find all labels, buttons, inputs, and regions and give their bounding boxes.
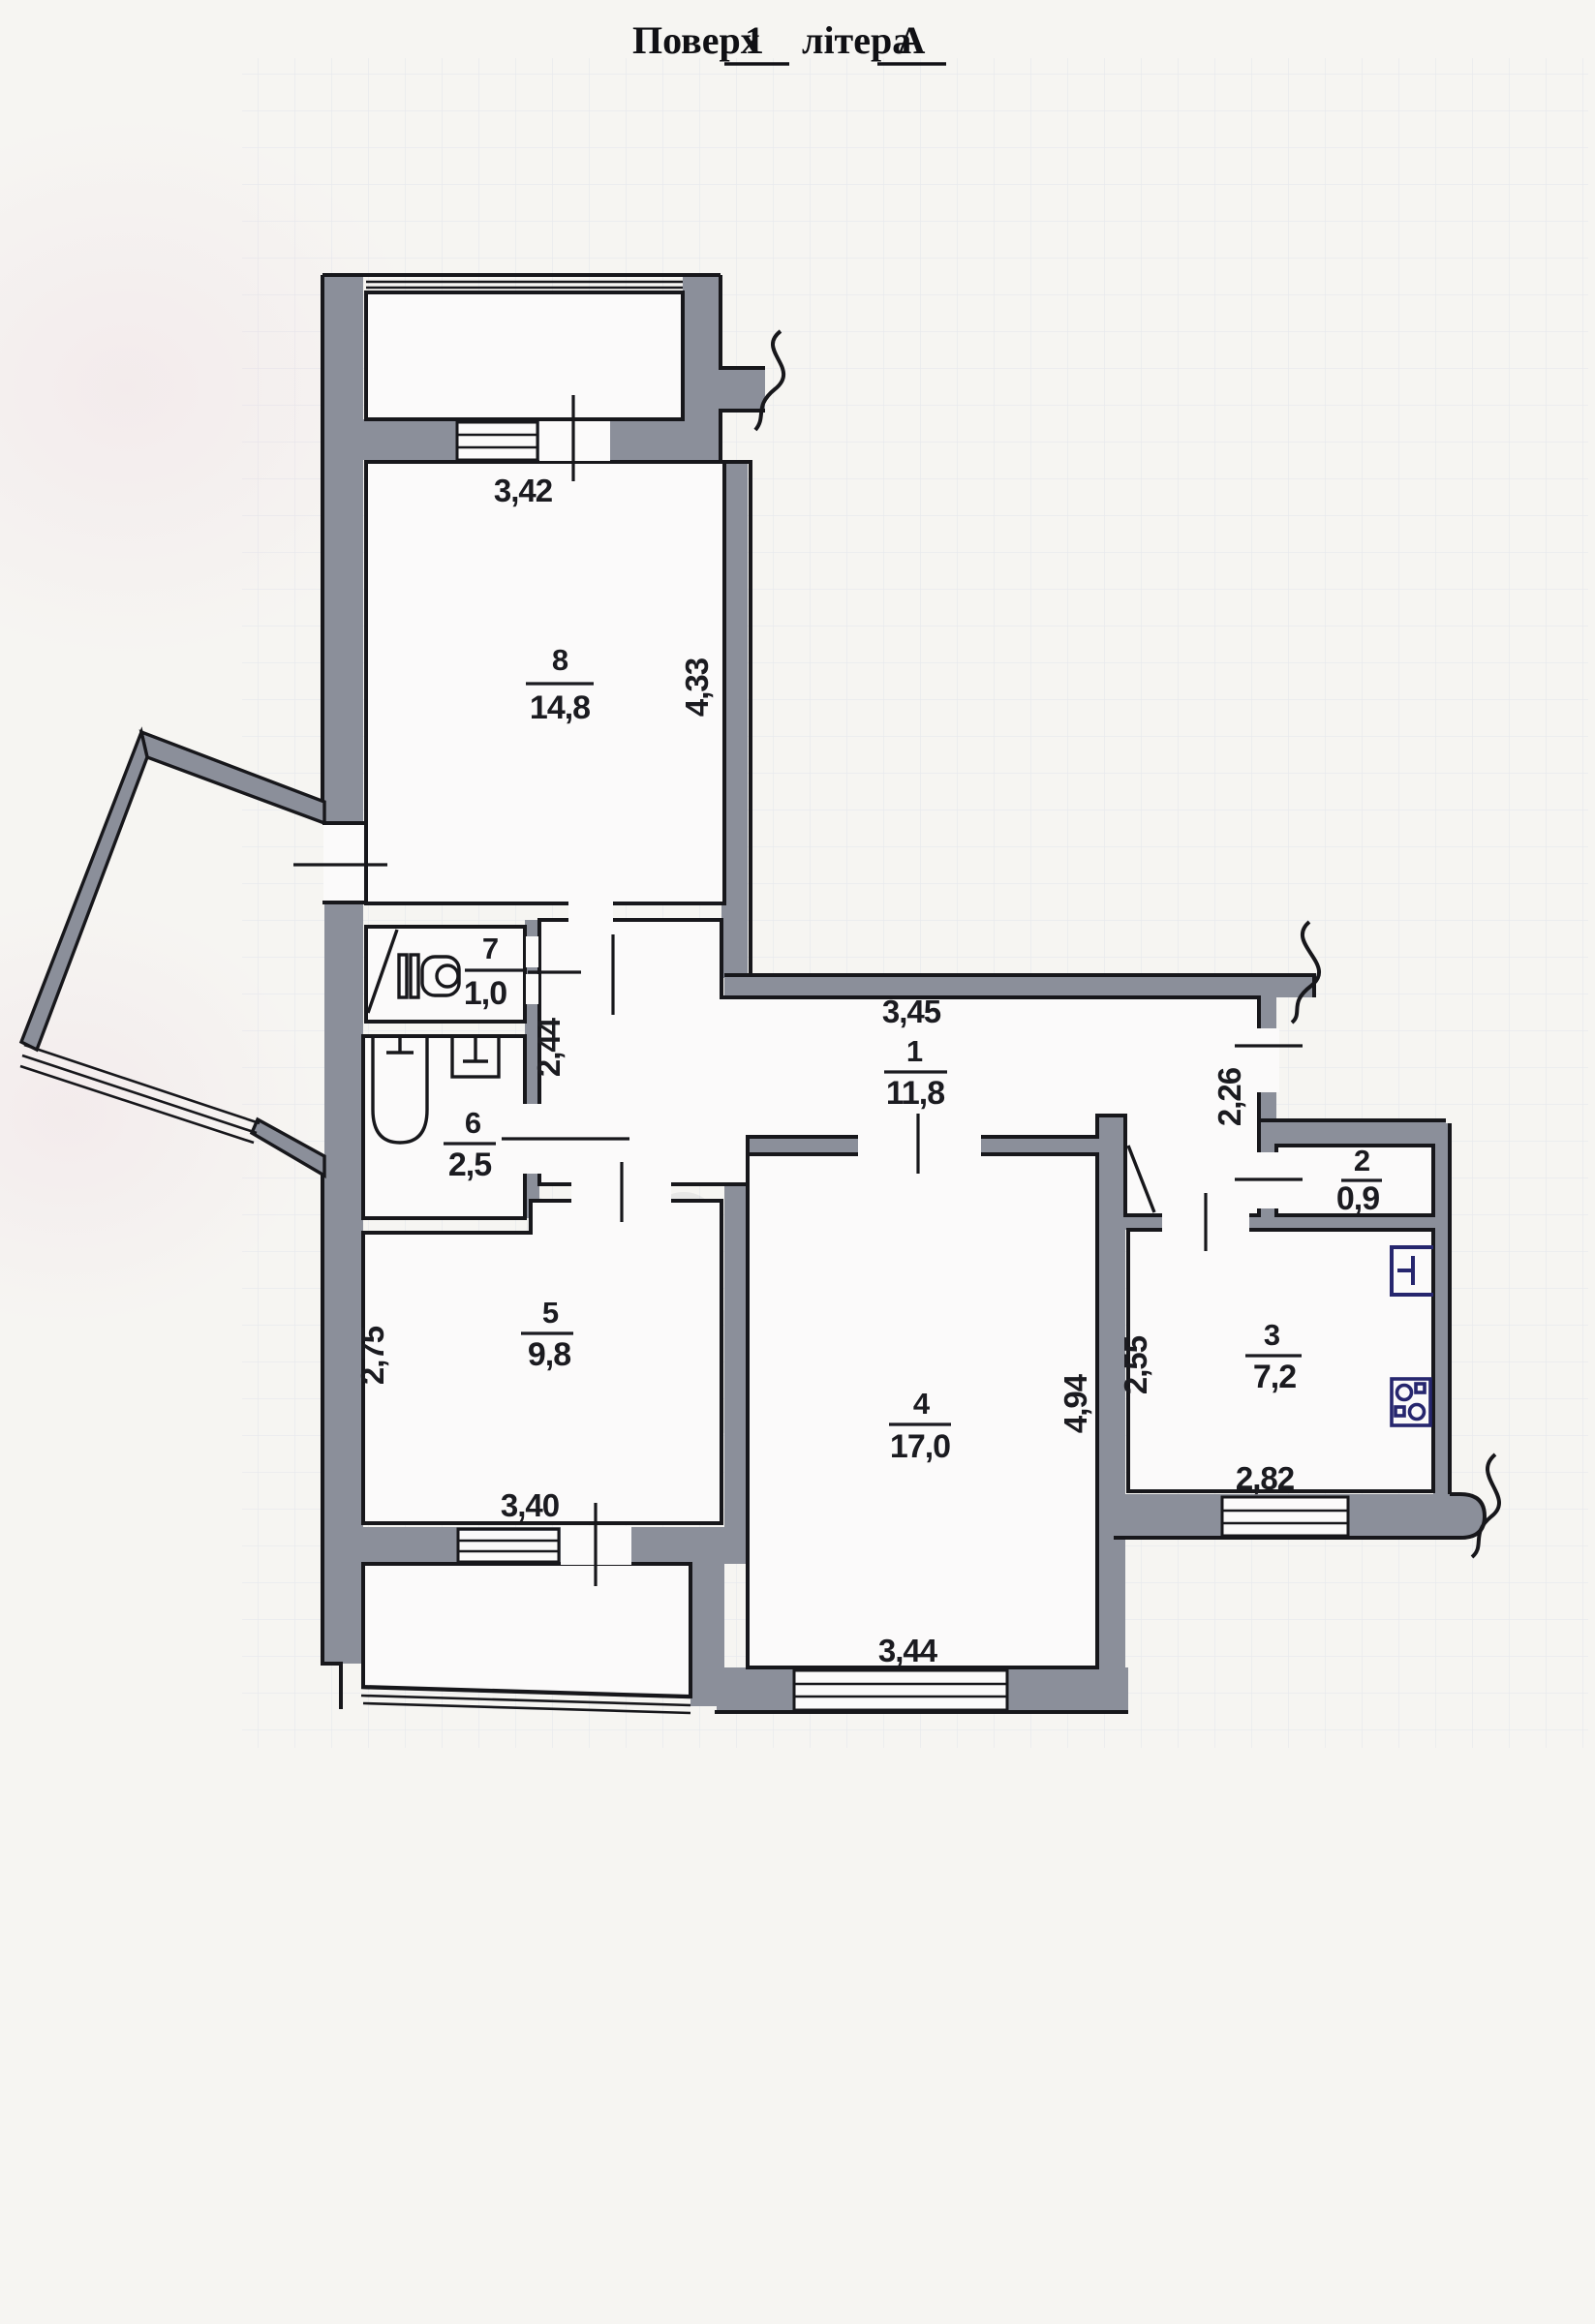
dim-3-40: 3,40 [501, 1487, 559, 1523]
dim-2-44: 2,44 [531, 1017, 567, 1077]
svg-text:8: 8 [552, 643, 568, 677]
svg-text:14,8: 14,8 [530, 689, 590, 726]
floor-plan-drawing: Поверх 1 літера А 8 14,8 7 1,0 6 2,5 5 9… [0, 0, 1595, 2324]
dim-3-45: 3,45 [882, 994, 941, 1029]
room-6-bathroom [363, 1036, 525, 1218]
dim-2-26: 2,26 [1212, 1067, 1247, 1126]
svg-text:11,8: 11,8 [886, 1075, 944, 1112]
svg-text:7: 7 [482, 932, 498, 965]
room-top-balcony [366, 292, 683, 419]
svg-text:2: 2 [1354, 1144, 1369, 1177]
svg-text:3: 3 [1264, 1318, 1280, 1352]
svg-text:7,2: 7,2 [1253, 1359, 1296, 1395]
svg-text:1: 1 [906, 1034, 923, 1068]
svg-text:9,8: 9,8 [528, 1336, 570, 1373]
title-label: Поверх [632, 18, 760, 62]
svg-text:6: 6 [465, 1106, 481, 1140]
dim-2-75: 2,75 [354, 1326, 390, 1385]
dim-2-55: 2,55 [1118, 1335, 1153, 1394]
svg-text:0,9: 0,9 [1336, 1180, 1379, 1217]
svg-text:4: 4 [913, 1387, 931, 1421]
dim-4-94: 4,94 [1058, 1373, 1093, 1433]
scanned-floor-plan-page: Поверх 1 літера А 8 14,8 7 1,0 6 2,5 5 9… [0, 0, 1595, 2324]
dim-2-82: 2,82 [1236, 1460, 1295, 1496]
title-middle-label: літера [802, 18, 911, 62]
svg-text:1,0: 1,0 [464, 975, 506, 1012]
svg-text:17,0: 17,0 [890, 1428, 950, 1465]
title-letter-value: А [898, 18, 926, 62]
dim-3-42: 3,42 [494, 473, 553, 508]
dim-4-33: 4,33 [679, 657, 715, 717]
dim-3-44: 3,44 [878, 1633, 938, 1668]
title-floor-value: 1 [745, 18, 764, 62]
svg-text:2,5: 2,5 [448, 1147, 491, 1183]
svg-text:5: 5 [542, 1296, 559, 1330]
room-bottom-balcony [363, 1564, 690, 1697]
